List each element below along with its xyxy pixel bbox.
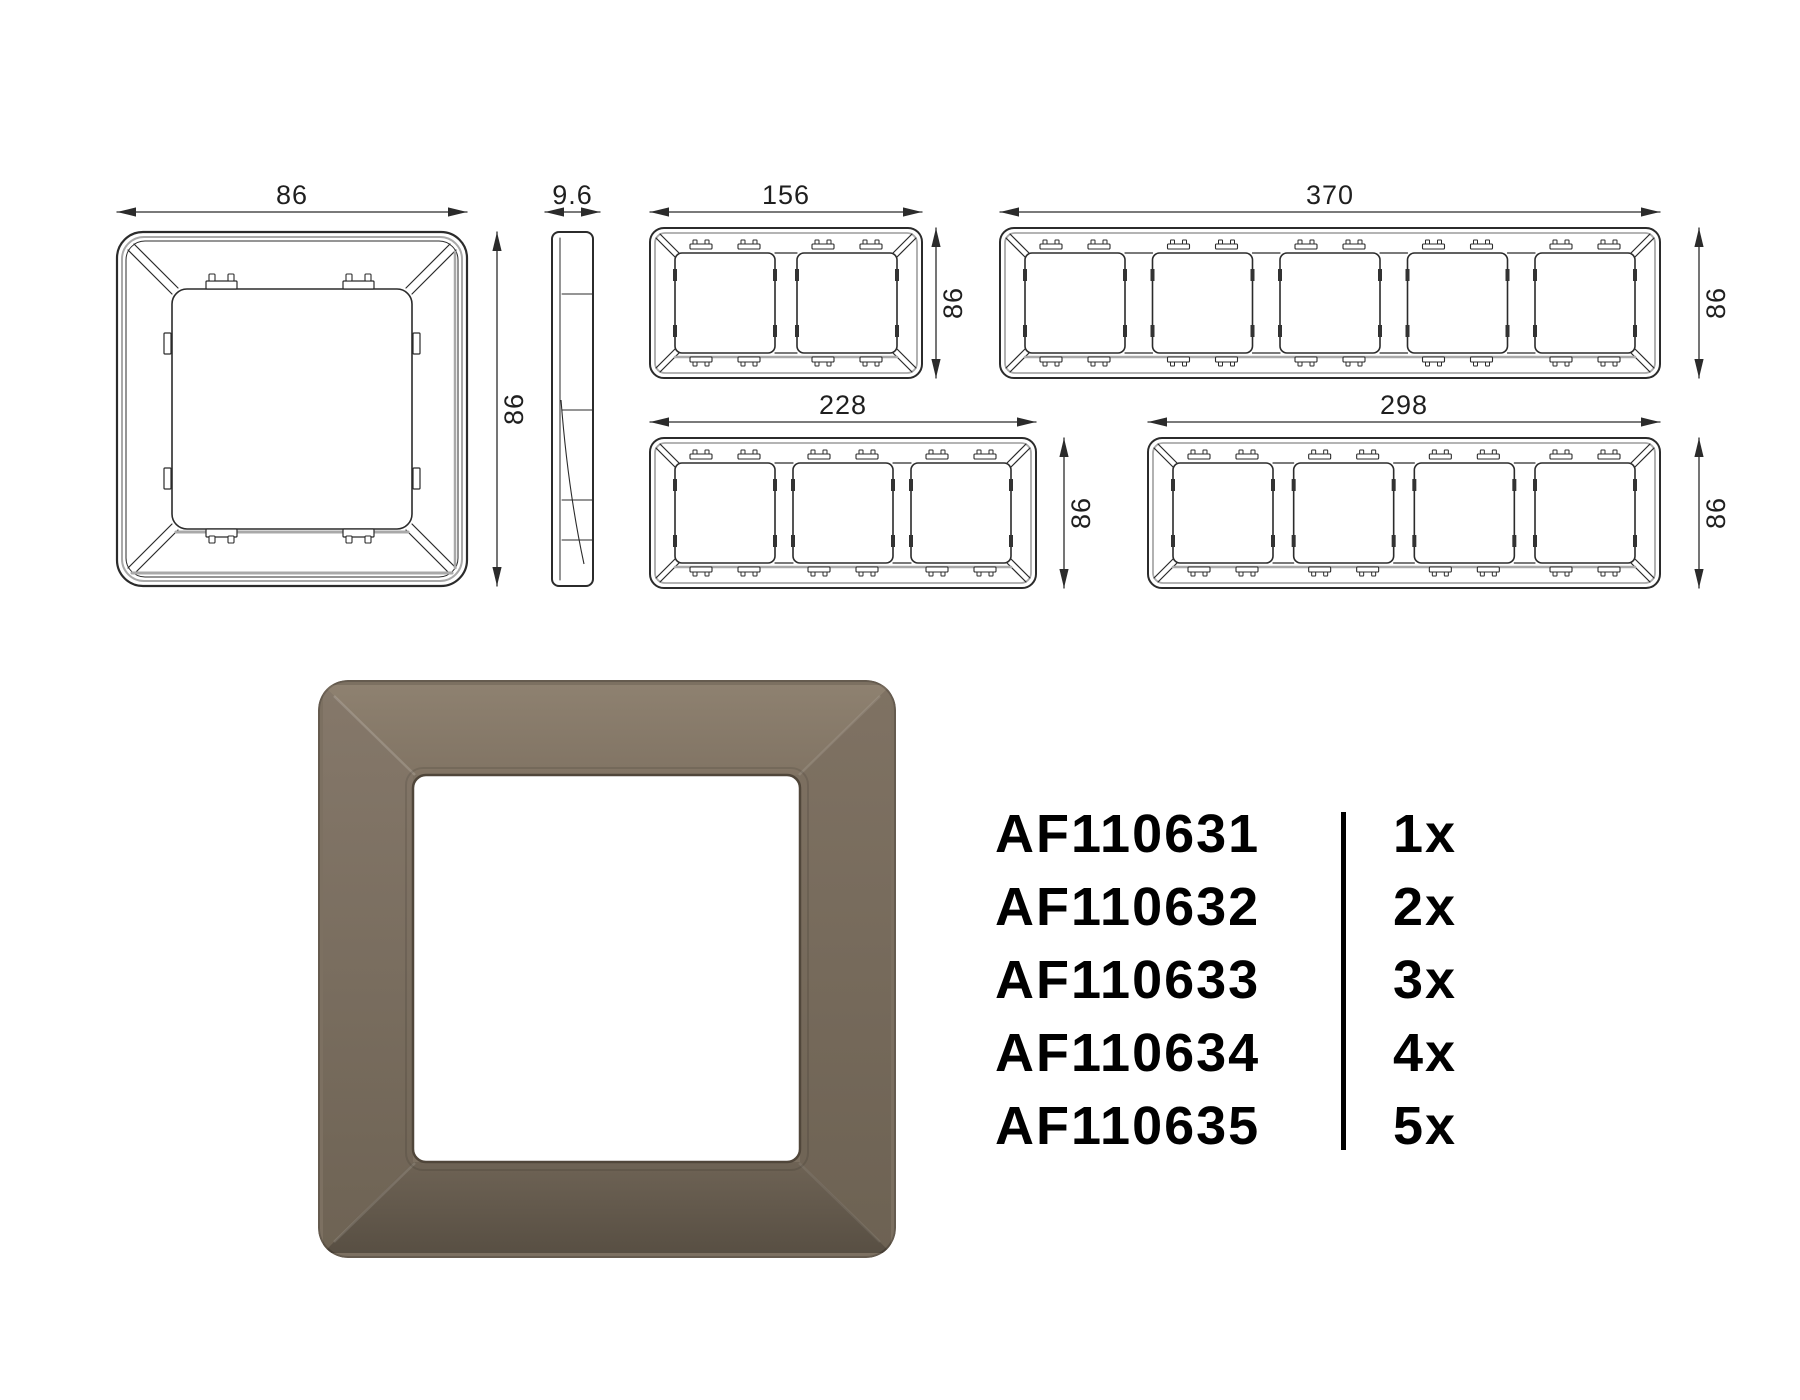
technical-drawings-canvas: 86869.615686370862288629886 xyxy=(0,0,1800,1400)
product-code: AF110635 xyxy=(995,1090,1260,1163)
list-divider xyxy=(1341,812,1346,1150)
product-photo xyxy=(318,680,896,1258)
product-qty: 3x xyxy=(1393,944,1457,1017)
datasheet-page: 86869.615686370862288629886 xyxy=(0,0,1800,1400)
frame-face-left xyxy=(323,685,413,1253)
frame-drawing-3x: 22886 xyxy=(650,390,1096,588)
product-code: AF110633 xyxy=(995,944,1260,1017)
dimension-label: 86 xyxy=(499,393,529,425)
dimension-label: 9.6 xyxy=(552,180,593,210)
side-view-drawing: 9.6 xyxy=(545,180,600,586)
product-qty: 4x xyxy=(1393,1017,1457,1090)
product-qty: 1x xyxy=(1393,798,1457,871)
frame-face-bottom xyxy=(323,1162,891,1253)
frame-drawing-5x: 37086 xyxy=(1000,180,1731,378)
product-qty: 2x xyxy=(1393,871,1457,944)
dimension-label: 228 xyxy=(819,390,867,420)
frame-drawing-2x: 15686 xyxy=(650,180,968,378)
dimension-label: 86 xyxy=(938,287,968,319)
dimension-label: 370 xyxy=(1306,180,1354,210)
dimension-label: 86 xyxy=(1066,497,1096,529)
product-code: AF110631 xyxy=(995,798,1260,871)
dimension-label: 86 xyxy=(1701,497,1731,529)
product-qty: 5x xyxy=(1393,1090,1457,1163)
dimension-label: 298 xyxy=(1380,390,1428,420)
frame-face-right xyxy=(800,685,891,1253)
product-code: AF110634 xyxy=(995,1017,1260,1090)
product-code-list: AF110631 AF110632 AF110633 AF110634 AF11… xyxy=(995,798,1260,1163)
frame-drawing-4x: 29886 xyxy=(1148,390,1731,588)
front-view-drawing: 8686 xyxy=(117,180,529,586)
dimension-label: 156 xyxy=(762,180,810,210)
dimension-label: 86 xyxy=(276,180,308,210)
product-code: AF110632 xyxy=(995,871,1260,944)
frame-face-top xyxy=(323,685,891,775)
frame-window xyxy=(413,775,800,1162)
product-qty-list: 1x 2x 3x 4x 5x xyxy=(1393,798,1457,1163)
dimension-label: 86 xyxy=(1701,287,1731,319)
